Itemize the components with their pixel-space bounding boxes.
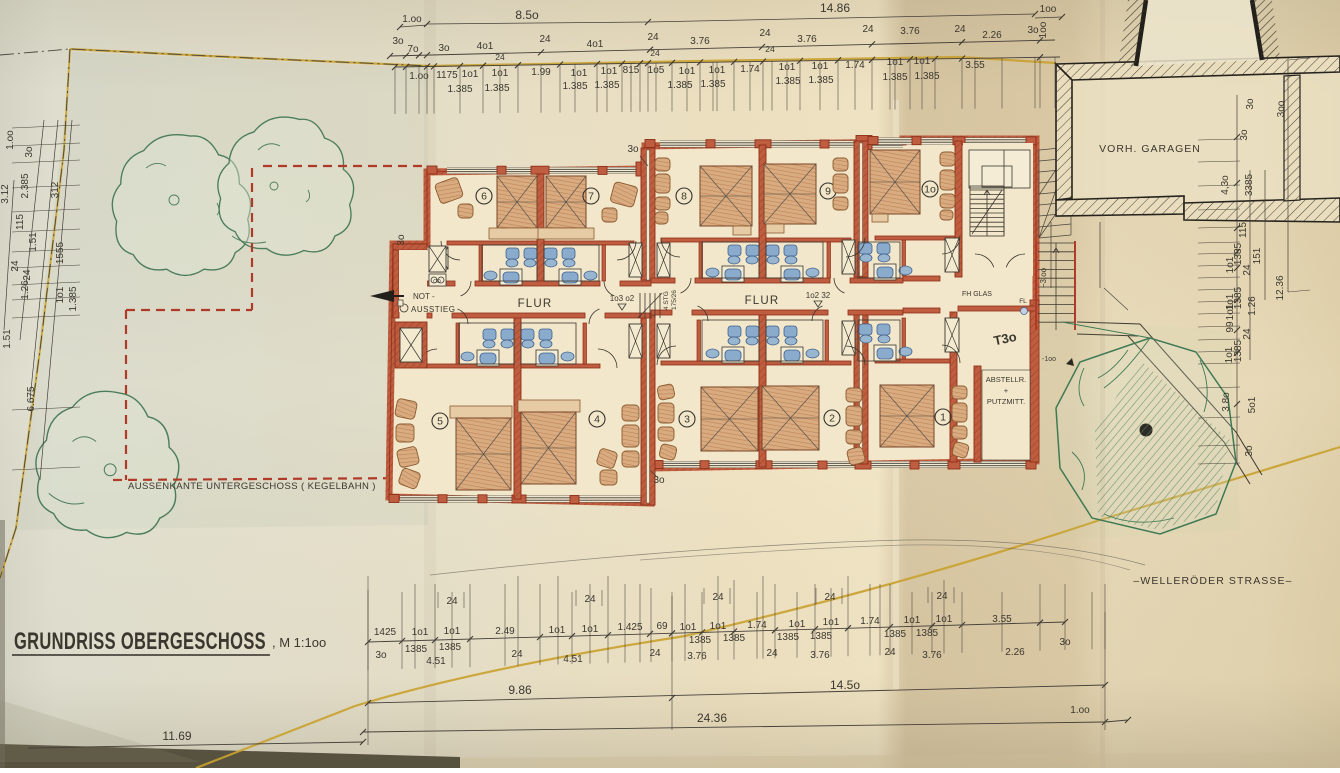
svg-text:1.385: 1.385	[484, 83, 509, 94]
svg-text:175/26: 175/26	[671, 290, 678, 310]
svg-text:7: 7	[588, 191, 594, 203]
svg-text:4o1: 4o1	[587, 39, 604, 50]
svg-text:2.385: 2.385	[20, 173, 31, 198]
svg-text:3.76: 3.76	[797, 34, 817, 45]
svg-text:3.76: 3.76	[690, 36, 710, 47]
svg-text:69: 69	[656, 621, 668, 632]
svg-text:24.36: 24.36	[697, 711, 727, 725]
svg-text:1o1: 1o1	[462, 69, 479, 80]
svg-text:3o: 3o	[1245, 98, 1256, 110]
svg-text:1.26: 1.26	[1247, 296, 1258, 316]
svg-text:7o: 7o	[407, 44, 419, 55]
svg-text:4 STG: 4 STG	[663, 291, 670, 310]
svg-text:FL: FL	[1019, 298, 1027, 305]
svg-text:24: 24	[936, 591, 948, 602]
svg-text:1385: 1385	[405, 644, 428, 655]
svg-text:3.76: 3.76	[810, 650, 830, 661]
svg-text:GRUNDRISS OBERGESCHOSS: GRUNDRISS OBERGESCHOSS	[14, 628, 266, 655]
svg-text:1o3 o2: 1o3 o2	[610, 294, 635, 303]
svg-text:24: 24	[539, 34, 551, 45]
svg-text:1.oo: 1.oo	[5, 130, 16, 150]
svg-text:6: 6	[481, 191, 487, 203]
svg-text:24: 24	[22, 269, 33, 281]
svg-text:24: 24	[765, 44, 775, 54]
svg-text:1.51: 1.51	[28, 232, 39, 252]
svg-text:1385: 1385	[884, 629, 907, 640]
svg-text:24: 24	[1242, 328, 1253, 340]
svg-text:3o: 3o	[392, 36, 404, 47]
svg-text:+: +	[1004, 386, 1009, 395]
svg-text:3.12: 3.12	[0, 184, 11, 204]
svg-text:NOT -: NOT -	[413, 292, 435, 301]
svg-text:FH GLAS: FH GLAS	[962, 291, 992, 298]
svg-text:24: 24	[862, 24, 874, 35]
svg-text:4: 4	[594, 414, 600, 426]
svg-text:3o: 3o	[653, 475, 665, 486]
svg-text:AUSSTIEG: AUSSTIEG	[411, 305, 455, 314]
svg-text:5o1: 5o1	[1247, 396, 1258, 413]
svg-text:1.425: 1.425	[617, 622, 642, 633]
svg-text:3o: 3o	[627, 144, 639, 155]
svg-text:1.51: 1.51	[2, 329, 13, 349]
svg-text:–WELLERÖDER STRASSE–: –WELLERÖDER STRASSE–	[1133, 575, 1292, 587]
svg-text:1o1: 1o1	[680, 622, 697, 633]
svg-text:1o1: 1o1	[55, 286, 66, 303]
svg-text:, M 1:1oo: , M 1:1oo	[272, 635, 326, 650]
svg-text:3.76: 3.76	[900, 26, 920, 37]
svg-text:1.oo: 1.oo	[1070, 705, 1090, 716]
svg-text:3oo: 3oo	[1276, 100, 1287, 117]
svg-text:1.26: 1.26	[20, 280, 31, 300]
svg-text:1.385: 1.385	[68, 286, 79, 311]
svg-text:4.51: 4.51	[426, 656, 446, 667]
svg-text:1175: 1175	[436, 70, 458, 81]
svg-text:312: 312	[50, 181, 61, 198]
svg-text:1385: 1385	[439, 642, 462, 653]
svg-text:1385: 1385	[689, 635, 712, 646]
svg-text:1.385: 1.385	[808, 75, 833, 86]
svg-text:1oo: 1oo	[1038, 21, 1049, 38]
svg-text:2.26: 2.26	[982, 30, 1002, 41]
svg-text:24: 24	[495, 52, 505, 62]
svg-text:24: 24	[10, 260, 21, 272]
svg-text:−3.oo: −3.oo	[1039, 267, 1048, 288]
svg-text:3o: 3o	[1244, 445, 1255, 457]
svg-text:3: 3	[684, 414, 690, 426]
svg-text:1: 1	[940, 412, 946, 424]
svg-text:9.86: 9.86	[508, 683, 532, 697]
svg-text:3385: 3385	[1244, 173, 1255, 196]
svg-text:115: 115	[15, 214, 26, 230]
svg-text:8: 8	[681, 191, 687, 203]
svg-text:1.385: 1.385	[914, 71, 939, 82]
svg-text:1o1: 1o1	[1225, 303, 1236, 320]
svg-text:PUTZMITT.: PUTZMITT.	[987, 397, 1025, 406]
svg-text:ABSTELLR.: ABSTELLR.	[986, 375, 1026, 384]
svg-text:3.8o: 3.8o	[1221, 392, 1232, 412]
svg-text:6.675: 6.675	[26, 386, 37, 411]
svg-text:1385: 1385	[777, 632, 800, 643]
svg-text:24: 24	[647, 32, 659, 43]
svg-text:14.86: 14.86	[820, 1, 850, 15]
svg-text:24: 24	[759, 28, 771, 39]
svg-text:3o: 3o	[24, 146, 35, 158]
svg-text:1.385: 1.385	[775, 76, 800, 87]
svg-text:24: 24	[650, 48, 660, 58]
svg-text:1o: 1o	[924, 184, 936, 196]
svg-text:1385: 1385	[916, 628, 939, 639]
svg-text:4.51: 4.51	[563, 654, 583, 665]
svg-text:9: 9	[825, 186, 831, 198]
svg-text:3o: 3o	[396, 234, 407, 246]
svg-text:1.385: 1.385	[667, 80, 692, 91]
svg-text:FLUR: FLUR	[518, 298, 553, 310]
svg-text:3o: 3o	[375, 650, 387, 661]
svg-text:1o1: 1o1	[601, 66, 618, 77]
svg-text:8.5o: 8.5o	[515, 8, 539, 22]
svg-text:1555: 1555	[55, 241, 66, 264]
svg-text:3o: 3o	[1239, 129, 1250, 141]
svg-text:1o2 32: 1o2 32	[806, 291, 831, 300]
svg-text:5: 5	[437, 416, 443, 428]
svg-text:14.5o: 14.5o	[830, 678, 860, 692]
svg-text:24: 24	[511, 649, 523, 660]
svg-text:151: 151	[1252, 247, 1263, 264]
svg-text:24: 24	[766, 648, 778, 659]
svg-text:3.76: 3.76	[687, 651, 707, 662]
svg-text:1425: 1425	[374, 627, 397, 638]
svg-text:1.oo: 1.oo	[402, 14, 422, 25]
svg-text:1o1: 1o1	[412, 627, 429, 638]
svg-text:OD: OD	[433, 279, 441, 285]
svg-text:4o1: 4o1	[477, 41, 494, 52]
svg-text:1o1: 1o1	[571, 68, 588, 79]
svg-text:1385: 1385	[810, 631, 833, 642]
svg-text:3o: 3o	[438, 43, 450, 54]
svg-text:24: 24	[954, 24, 966, 35]
svg-text:99: 99	[1225, 321, 1236, 333]
svg-text:115: 115	[1238, 222, 1249, 238]
svg-text:FLUR: FLUR	[745, 295, 780, 307]
svg-text:12.36: 12.36	[1275, 275, 1286, 300]
svg-text:AUSSENKANTE UNTERGESCHOSS ( K: AUSSENKANTE UNTERGESCHOSS ( KEGELBAHN )	[128, 481, 376, 492]
svg-text:1o1: 1o1	[549, 625, 566, 636]
svg-text:VORH. GARAGEN: VORH. GARAGEN	[1099, 143, 1201, 155]
svg-text:24: 24	[824, 592, 836, 603]
svg-text:2.26: 2.26	[1005, 647, 1025, 658]
svg-text:1oo: 1oo	[1040, 4, 1057, 15]
svg-text:2: 2	[829, 413, 835, 425]
svg-text:11.69: 11.69	[162, 729, 191, 743]
svg-text:4,3o: 4,3o	[1220, 175, 1231, 195]
